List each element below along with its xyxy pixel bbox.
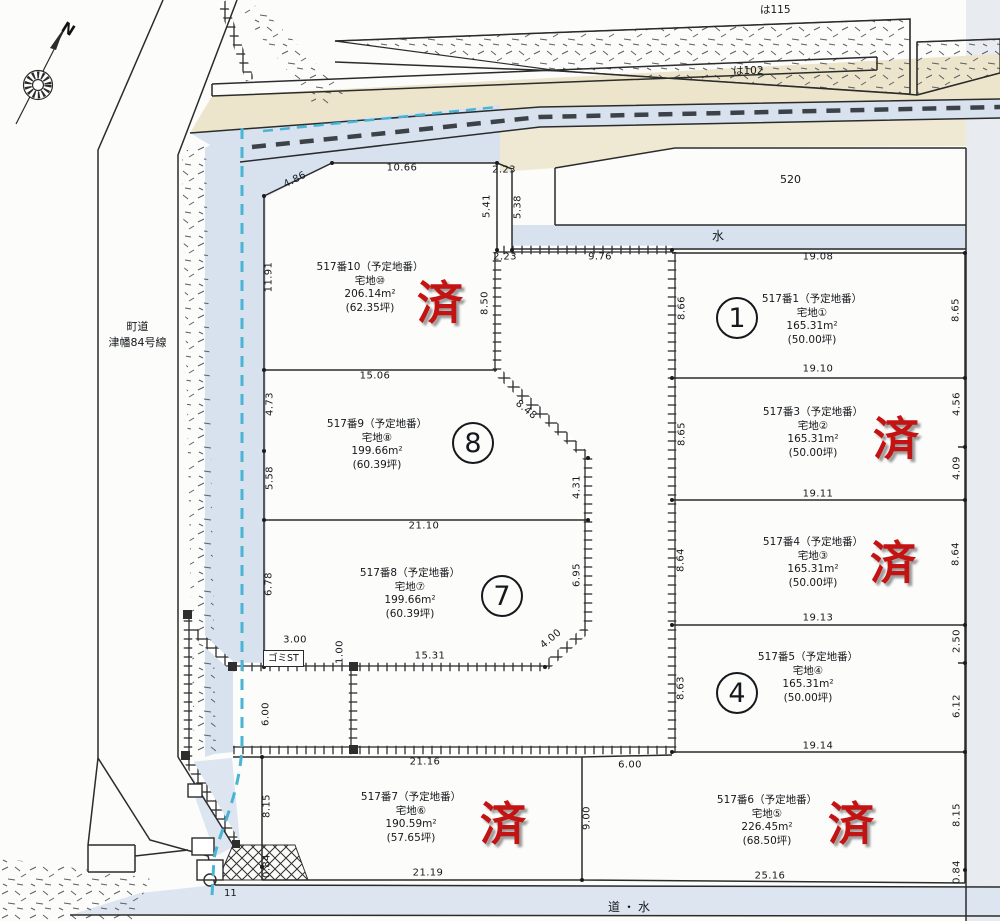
lot-9-area: 199.66m² bbox=[327, 445, 427, 459]
lot-6-number: 宅地⑤ bbox=[717, 808, 817, 822]
lot-6-name: 517番6（予定地番） bbox=[717, 794, 817, 808]
lot-4-tsubo: (50.00坪) bbox=[763, 577, 863, 591]
lot-10-tsubo: (62.35坪) bbox=[317, 302, 424, 316]
dim-label: 15.06 bbox=[360, 371, 391, 382]
dim-label: 6.00 bbox=[618, 760, 642, 771]
lot-9-tsubo: (60.39坪) bbox=[327, 459, 427, 473]
dim-label: 21.16 bbox=[410, 757, 441, 768]
dim-label: 19.13 bbox=[803, 613, 834, 624]
lot-5-circle-number: 4 bbox=[716, 672, 758, 714]
town-road-line2: 津幡84号線 bbox=[95, 334, 180, 350]
site-plan: N は115 は102 520 水 道・水 11 町道 津幡84号線 ゴミST … bbox=[0, 0, 1000, 921]
dim-label: 6.00 bbox=[261, 702, 272, 726]
lot-4-name: 517番4（予定地番） bbox=[763, 536, 863, 550]
lot-5-number: 宅地④ bbox=[758, 665, 858, 679]
town-road-line1: 町道 bbox=[95, 318, 180, 334]
lot-8-number: 宅地⑦ bbox=[360, 581, 460, 595]
dim-label: 2.23 bbox=[493, 252, 517, 263]
dim-label: 19.08 bbox=[803, 252, 834, 263]
lot-10-sold-stamp: 済 bbox=[417, 267, 463, 333]
lot-7-number: 宅地⑥ bbox=[361, 805, 461, 819]
lot-10-number: 宅地⑩ bbox=[317, 275, 424, 289]
lot-6-tsubo: (68.50坪) bbox=[717, 835, 817, 849]
dim-label: 8.15 bbox=[262, 794, 273, 818]
dim-label: 4.09 bbox=[952, 456, 963, 480]
water-channel-label: 水 bbox=[712, 227, 724, 244]
lot-9-name: 517番9（予定地番） bbox=[327, 418, 427, 432]
lot-8-label: 517番8（予定地番） 宅地⑦ 199.66m² (60.39坪) bbox=[360, 567, 460, 621]
lot-7-name: 517番7（予定地番） bbox=[361, 791, 461, 805]
lot-9-label: 517番9（予定地番） 宅地⑧ 199.66m² (60.39坪) bbox=[327, 418, 427, 472]
lot-3-number: 宅地② bbox=[763, 420, 863, 434]
lot-1-name: 517番1（予定地番） bbox=[762, 293, 862, 307]
lot-4-area: 165.31m² bbox=[763, 563, 863, 577]
lot-1-area: 165.31m² bbox=[762, 320, 862, 334]
lot-1-circle-number: 1 bbox=[716, 297, 758, 339]
lot-8-circle-number: 7 bbox=[481, 575, 523, 617]
dim-label: 5.38 bbox=[513, 195, 524, 219]
lot-3-sold-stamp: 済 bbox=[873, 403, 919, 469]
dim-label: 0.84 bbox=[262, 854, 273, 878]
dim-label: 8.15 bbox=[952, 803, 963, 827]
dim-label: 8.64 bbox=[951, 542, 962, 566]
lot-6-area: 226.45m² bbox=[717, 821, 817, 835]
dim-label: 9.76 bbox=[588, 252, 612, 263]
north-arrow bbox=[16, 26, 66, 124]
town-road-label: 町道 津幡84号線 bbox=[95, 318, 180, 350]
dim-label: 4.31 bbox=[572, 475, 583, 499]
lot-4-label: 517番4（予定地番） 宅地③ 165.31m² (50.00坪) bbox=[763, 536, 863, 590]
lot-3-name: 517番3（予定地番） bbox=[763, 406, 863, 420]
dim-label: 6.12 bbox=[952, 694, 963, 718]
dim-label: 11.91 bbox=[264, 262, 275, 293]
dim-label: 21.19 bbox=[413, 868, 444, 879]
garbage-station-label: ゴミST bbox=[263, 650, 304, 667]
dim-label: 8.63 bbox=[676, 676, 687, 700]
boundary-label-ha102: は102 bbox=[733, 63, 764, 78]
dim-label: 19.14 bbox=[803, 741, 834, 752]
dim-label: 19.10 bbox=[803, 364, 834, 375]
lot-3-label: 517番3（予定地番） 宅地② 165.31m² (50.00坪) bbox=[763, 406, 863, 460]
lot-1-number: 宅地① bbox=[762, 307, 862, 321]
dim-label: 6.78 bbox=[264, 572, 275, 596]
lot-9-number: 宅地⑧ bbox=[327, 432, 427, 446]
dim-label: 6.95 bbox=[572, 563, 583, 587]
dim-label: 9.00 bbox=[582, 806, 593, 830]
dim-label: 25.16 bbox=[755, 871, 786, 882]
lot-7-sold-stamp: 済 bbox=[480, 788, 526, 854]
dim-label: 2.23 bbox=[492, 165, 516, 176]
dim-label: 8.50 bbox=[480, 291, 491, 315]
lot-8-name: 517番8（予定地番） bbox=[360, 567, 460, 581]
dim-label: 8.65 bbox=[951, 298, 962, 322]
boundary-label-ha115: は115 bbox=[760, 2, 791, 17]
lot-6-sold-stamp: 済 bbox=[828, 788, 874, 854]
dim-label: 0.84 bbox=[952, 860, 963, 884]
mark-11-label: 11 bbox=[224, 888, 237, 899]
lot-5-name: 517番5（予定地番） bbox=[758, 651, 858, 665]
road-water-label: 道・水 bbox=[608, 898, 653, 915]
dim-label: 15.31 bbox=[415, 651, 446, 662]
lot-10-name: 517番10（予定地番） bbox=[317, 261, 424, 275]
dim-label: 8.64 bbox=[676, 548, 687, 572]
lot-3-tsubo: (50.00坪) bbox=[763, 447, 863, 461]
lot-7-label: 517番7（予定地番） 宅地⑥ 190.59m² (57.65坪) bbox=[361, 791, 461, 845]
dim-label: 2.50 bbox=[952, 629, 963, 653]
dim-label: 4.73 bbox=[265, 392, 276, 416]
lot-1-label: 517番1（予定地番） 宅地① 165.31m² (50.00坪) bbox=[762, 293, 862, 347]
dim-label: 8.65 bbox=[677, 422, 688, 446]
dim-label: 1.00 bbox=[335, 640, 346, 664]
lot-8-tsubo: (60.39坪) bbox=[360, 608, 460, 622]
lot-7-area: 190.59m² bbox=[361, 818, 461, 832]
site-plan-drawing bbox=[0, 0, 1000, 921]
dim-label: 5.58 bbox=[265, 466, 276, 490]
dim-label: 19.11 bbox=[803, 489, 834, 500]
dim-label: 4.56 bbox=[952, 392, 963, 416]
dim-label: 3.00 bbox=[283, 635, 307, 646]
parcel-520-label: 520 bbox=[780, 173, 801, 186]
lot-5-label: 517番5（予定地番） 宅地④ 165.31m² (50.00坪) bbox=[758, 651, 858, 705]
dim-label: 10.66 bbox=[387, 163, 418, 174]
lot-5-tsubo: (50.00坪) bbox=[758, 692, 858, 706]
dim-label: 8.66 bbox=[677, 296, 688, 320]
lot-4-sold-stamp: 済 bbox=[870, 527, 916, 593]
lot-6-label: 517番6（予定地番） 宅地⑤ 226.45m² (68.50坪) bbox=[717, 794, 817, 848]
lot-5-area: 165.31m² bbox=[758, 678, 858, 692]
lot-7-tsubo: (57.65坪) bbox=[361, 832, 461, 846]
dim-label: 21.10 bbox=[409, 521, 440, 532]
lot-3-area: 165.31m² bbox=[763, 433, 863, 447]
lot-10-label: 517番10（予定地番） 宅地⑩ 206.14m² (62.35坪) bbox=[317, 261, 424, 315]
lot-8-area: 199.66m² bbox=[360, 594, 460, 608]
dim-label: 5.41 bbox=[482, 194, 493, 218]
lot-9-circle-number: 8 bbox=[452, 422, 494, 464]
lot-10-area: 206.14m² bbox=[317, 288, 424, 302]
lot-4-number: 宅地③ bbox=[763, 550, 863, 564]
lot-1-tsubo: (50.00坪) bbox=[762, 334, 862, 348]
